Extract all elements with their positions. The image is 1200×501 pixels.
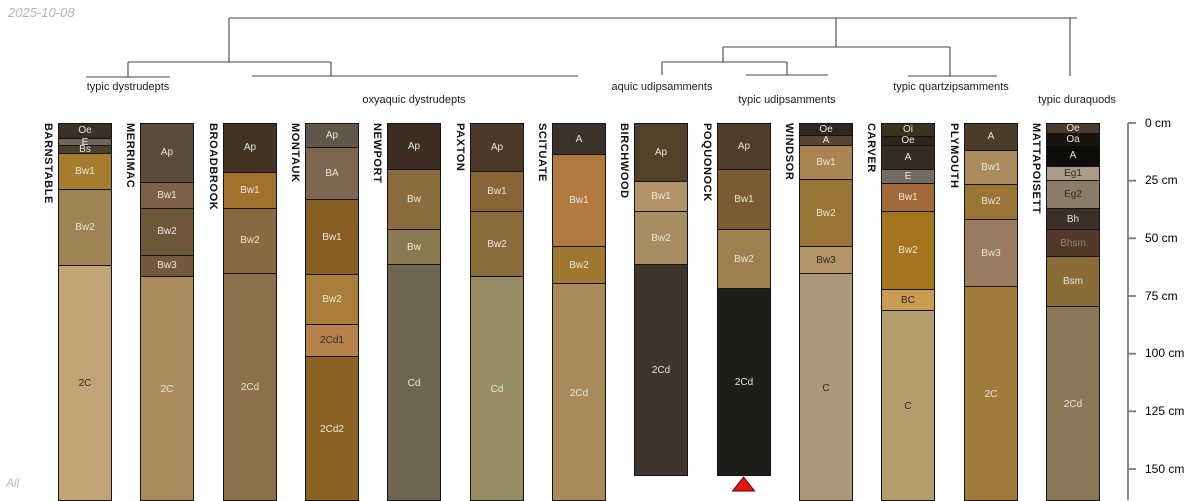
profile-column-merrimac: ApBw1Bw2Bw32C bbox=[140, 123, 194, 501]
horizon-montauk-bw1: Bw1 bbox=[306, 199, 358, 274]
group-label-aquic-udipsamments: aquic udipsamments bbox=[612, 81, 713, 93]
horizon-plymouth-bw1: Bw1 bbox=[965, 150, 1017, 184]
horizon-newport-bw: Bw bbox=[388, 169, 440, 229]
profile-name-mattapoisett: MATTAPOISETT bbox=[1030, 123, 1042, 214]
horizon-broadbrook-bw2: Bw2 bbox=[224, 208, 276, 273]
horizon-windsor-bw3: Bw3 bbox=[800, 246, 852, 273]
horizon-carver-bw1: Bw1 bbox=[882, 183, 934, 211]
footer-label: All bbox=[6, 476, 19, 490]
profile-name-scituate: SCITUATE bbox=[536, 123, 548, 182]
depth-tick-label-125: 125 cm bbox=[1145, 404, 1184, 418]
horizon-plymouth-2c: 2C bbox=[965, 286, 1017, 501]
horizon-newport-ap: Ap bbox=[388, 124, 440, 169]
horizon-carver-bw2: Bw2 bbox=[882, 211, 934, 289]
profile-column-montauk: ApBABw1Bw22Cd12Cd2 bbox=[305, 123, 359, 501]
horizon-carver-oe: Oe bbox=[882, 136, 934, 146]
horizon-poquonock-2cd: 2Cd bbox=[718, 288, 770, 474]
horizon-scituate-bw1: Bw1 bbox=[553, 154, 605, 246]
horizon-merrimac-2c: 2C bbox=[141, 276, 193, 501]
horizon-windsor-c: C bbox=[800, 273, 852, 501]
horizon-merrimac-bw1: Bw1 bbox=[141, 182, 193, 209]
depth-tick-label-75: 75 cm bbox=[1145, 289, 1178, 303]
dendrogram-lines bbox=[86, 18, 1077, 77]
profile-name-carver: CARVER bbox=[865, 123, 877, 173]
horizon-carver-c: C bbox=[882, 310, 934, 501]
horizon-birchwood-bw1: Bw1 bbox=[635, 181, 687, 211]
group-label-typic-quartzipsamments: typic quartzipsamments bbox=[893, 81, 1009, 93]
profile-column-birchwood: ApBw1Bw22Cd bbox=[634, 123, 688, 476]
group-label-typic-dystrudepts: typic dystrudepts bbox=[87, 81, 170, 93]
horizon-broadbrook-bw1: Bw1 bbox=[224, 172, 276, 208]
depth-tick-label-50: 50 cm bbox=[1145, 231, 1178, 245]
horizon-paxton-cd: Cd bbox=[471, 276, 523, 501]
horizon-mattapoisett-eg2: Eg2 bbox=[1047, 180, 1099, 209]
horizon-montauk-2cd2: 2Cd2 bbox=[306, 356, 358, 501]
horizon-carver-a: A bbox=[882, 145, 934, 169]
horizon-merrimac-ap: Ap bbox=[141, 124, 193, 182]
group-label-typic-duraquods: typic duraquods bbox=[1038, 94, 1116, 106]
profile-name-windsor: WINDSOR bbox=[783, 123, 795, 180]
profile-column-newport: ApBwBwCd bbox=[387, 123, 441, 501]
horizon-mattapoisett-2cd: 2Cd bbox=[1047, 306, 1099, 501]
group-label-typic-udipsamments: typic udipsamments bbox=[738, 94, 835, 106]
depth-tick-label-25: 25 cm bbox=[1145, 173, 1178, 187]
horizon-birchwood-bw2: Bw2 bbox=[635, 211, 687, 264]
horizon-paxton-ap: Ap bbox=[471, 124, 523, 171]
depth-tick-label-0: 0 cm bbox=[1145, 116, 1171, 130]
horizon-merrimac-bw2: Bw2 bbox=[141, 208, 193, 254]
horizon-windsor-oe: Oe bbox=[800, 124, 852, 135]
horizon-poquonock-ap: Ap bbox=[718, 124, 770, 169]
profile-name-plymouth: PLYMOUTH bbox=[948, 123, 960, 189]
horizon-broadbrook-ap: Ap bbox=[224, 124, 276, 172]
horizon-plymouth-a: A bbox=[965, 124, 1017, 150]
profile-column-poquonock: ApBw1Bw22Cd bbox=[717, 123, 771, 476]
horizon-plymouth-bw2: Bw2 bbox=[965, 184, 1017, 220]
marker-triangle-icon bbox=[733, 477, 755, 491]
horizon-newport-bw: Bw bbox=[388, 229, 440, 264]
horizon-montauk-2cd1: 2Cd1 bbox=[306, 324, 358, 356]
profile-column-plymouth: ABw1Bw2Bw32C bbox=[964, 123, 1018, 501]
horizon-birchwood-ap: Ap bbox=[635, 124, 687, 181]
date-label: 2025-10-08 bbox=[8, 5, 75, 20]
profile-column-barnstable: OeEBsBw1Bw22C bbox=[58, 123, 112, 501]
horizon-scituate-bw2: Bw2 bbox=[553, 246, 605, 283]
profile-name-newport: NEWPORT bbox=[371, 123, 383, 183]
horizon-montauk-ba: BA bbox=[306, 147, 358, 200]
depth-tick-label-100: 100 cm bbox=[1145, 346, 1184, 360]
horizon-poquonock-bw2: Bw2 bbox=[718, 229, 770, 288]
depth-tick-label-150: 150 cm bbox=[1145, 462, 1184, 476]
horizon-carver-e: E bbox=[882, 169, 934, 183]
horizon-mattapoisett-oe: Oe bbox=[1047, 124, 1099, 133]
profile-column-scituate: ABw1Bw22Cd bbox=[552, 123, 606, 501]
horizon-birchwood-2cd: 2Cd bbox=[635, 264, 687, 474]
horizon-barnstable-bw2: Bw2 bbox=[59, 189, 111, 265]
horizon-paxton-bw2: Bw2 bbox=[471, 211, 523, 276]
profile-column-mattapoisett: OeOaAEg1Eg2BhBhsmBsm2Cd bbox=[1046, 123, 1100, 501]
profile-column-windsor: OeABw1Bw2Bw3C bbox=[799, 123, 853, 501]
profile-name-merrimac: MERRIMAC bbox=[124, 123, 136, 188]
horizon-poquonock-bw1: Bw1 bbox=[718, 169, 770, 229]
horizon-merrimac-bw3: Bw3 bbox=[141, 255, 193, 277]
horizon-windsor-bw2: Bw2 bbox=[800, 179, 852, 246]
horizon-windsor-a: A bbox=[800, 135, 852, 145]
horizon-carver-bc: BC bbox=[882, 289, 934, 310]
profile-name-paxton: PAXTON bbox=[454, 123, 466, 171]
horizon-newport-cd: Cd bbox=[388, 264, 440, 501]
horizon-mattapoisett-bsm: Bsm bbox=[1047, 256, 1099, 306]
profile-name-barnstable: BARNSTABLE bbox=[42, 123, 54, 204]
horizon-plymouth-bw3: Bw3 bbox=[965, 219, 1017, 286]
horizon-carver-oi: Oi bbox=[882, 124, 934, 136]
horizon-barnstable-bs: Bs bbox=[59, 145, 111, 152]
profile-column-broadbrook: ApBw1Bw22Cd bbox=[223, 123, 277, 501]
group-label-oxyaquic-dystrudepts: oxyaquic dystrudepts bbox=[362, 94, 465, 106]
profile-name-montauk: MONTAUK bbox=[289, 123, 301, 183]
horizon-scituate-2cd: 2Cd bbox=[553, 283, 605, 501]
profile-column-carver: OiOeAEBw1Bw2BCC bbox=[881, 123, 935, 501]
profile-name-broadbrook: BROADBROOK bbox=[207, 123, 219, 210]
horizon-montauk-ap: Ap bbox=[306, 124, 358, 147]
horizon-barnstable-bw1: Bw1 bbox=[59, 153, 111, 189]
profile-column-paxton: ApBw1Bw2Cd bbox=[470, 123, 524, 501]
horizon-montauk-bw2: Bw2 bbox=[306, 274, 358, 324]
horizon-paxton-bw1: Bw1 bbox=[471, 171, 523, 212]
horizon-windsor-bw1: Bw1 bbox=[800, 145, 852, 180]
horizon-mattapoisett-eg1: Eg1 bbox=[1047, 166, 1099, 179]
horizon-mattapoisett-bh: Bh bbox=[1047, 208, 1099, 229]
profile-name-poquonock: POQUONOCK bbox=[701, 123, 713, 202]
horizon-barnstable-2c: 2C bbox=[59, 265, 111, 501]
horizon-mattapoisett-a: A bbox=[1047, 145, 1099, 167]
horizon-mattapoisett-oa: Oa bbox=[1047, 133, 1099, 145]
horizon-mattapoisett-bhsm: Bhsm bbox=[1047, 229, 1099, 256]
profile-name-birchwood: BIRCHWOOD bbox=[618, 123, 630, 199]
horizon-broadbrook-2cd: 2Cd bbox=[224, 273, 276, 501]
depth-axis-line bbox=[1128, 123, 1136, 500]
horizon-scituate-a: A bbox=[553, 124, 605, 154]
